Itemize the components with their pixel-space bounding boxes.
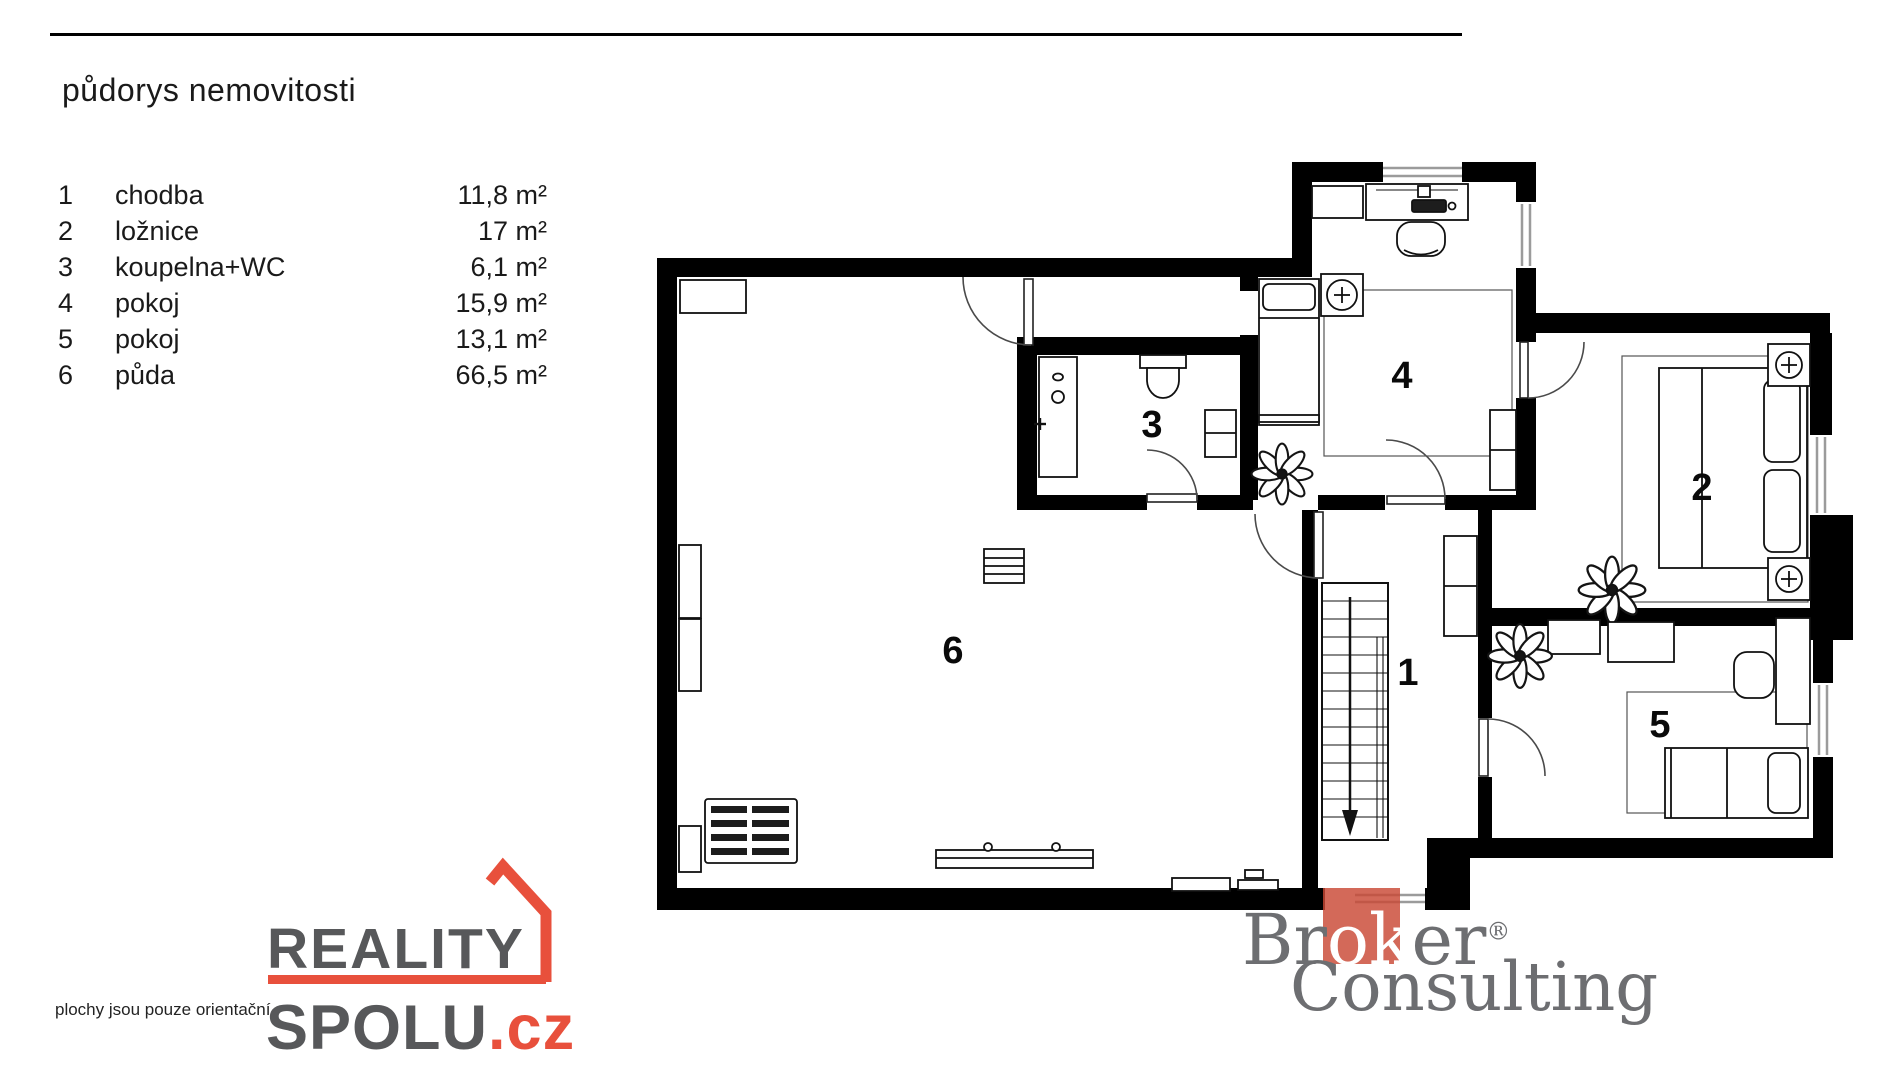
plant — [1252, 444, 1313, 505]
closet — [680, 280, 746, 313]
plant — [1579, 557, 1646, 624]
nightstand-lamp — [1768, 558, 1810, 600]
single-bed — [1665, 748, 1808, 818]
reality-logo-tld: .cz — [488, 993, 575, 1063]
plant — [1488, 624, 1552, 688]
door-bathroom — [1147, 450, 1197, 502]
cabinet — [1548, 620, 1600, 654]
room-label-6: 6 — [942, 630, 963, 672]
round-table — [1321, 274, 1363, 316]
desk — [1366, 184, 1468, 220]
wardrobe — [1490, 410, 1516, 490]
reality-logo-line1: REALITY — [267, 916, 525, 982]
pallet — [705, 799, 797, 863]
room4-furniture — [1252, 184, 1516, 504]
sink-counter — [1034, 357, 1077, 477]
disclaimer-text: plochy jsou pouze orientační — [55, 1000, 270, 1020]
toilet — [1140, 355, 1186, 398]
desk — [1776, 618, 1810, 724]
door-hall-room5 — [1479, 719, 1545, 776]
shelf-rack — [984, 549, 1024, 583]
misc-items — [1172, 870, 1278, 891]
broker-logo-line2: Consulting — [1290, 948, 1658, 1026]
registered-trademark-icon: ® — [1486, 918, 1510, 946]
hall-furniture — [1444, 536, 1477, 636]
room-label-4: 4 — [1391, 355, 1412, 397]
door-room2 — [1520, 342, 1584, 398]
room-label-1: 1 — [1397, 652, 1418, 694]
wall-shelf — [679, 826, 701, 872]
door-room6-bath-lobby — [963, 277, 1033, 345]
cabinet — [1608, 622, 1674, 662]
staircase — [1322, 583, 1388, 840]
door-hall-room4 — [1386, 440, 1445, 504]
double-bed — [1659, 368, 1807, 568]
room6-furniture — [679, 280, 1278, 891]
desk-chair — [1734, 652, 1774, 698]
floor-plan: 1 2 3 4 5 6 — [0, 0, 1900, 1069]
room-label-3: 3 — [1141, 404, 1162, 446]
room-label-2: 2 — [1691, 467, 1712, 509]
side-table — [1312, 186, 1363, 218]
hall-wardrobe — [1444, 536, 1477, 636]
single-bed — [1259, 279, 1319, 425]
desk-chair — [1397, 222, 1445, 256]
wall-shelf — [679, 545, 701, 618]
nightstand-lamp — [1768, 344, 1810, 386]
reality-logo-line2: SPOLU.cz — [266, 992, 575, 1064]
room-label-5: 5 — [1649, 704, 1670, 746]
wall-shelf — [679, 619, 701, 691]
bathroom-fixtures — [1034, 355, 1236, 477]
reality-logo-spolu: SPOLU — [266, 993, 488, 1063]
bath-cabinet — [1205, 410, 1236, 457]
workbench — [936, 843, 1093, 868]
